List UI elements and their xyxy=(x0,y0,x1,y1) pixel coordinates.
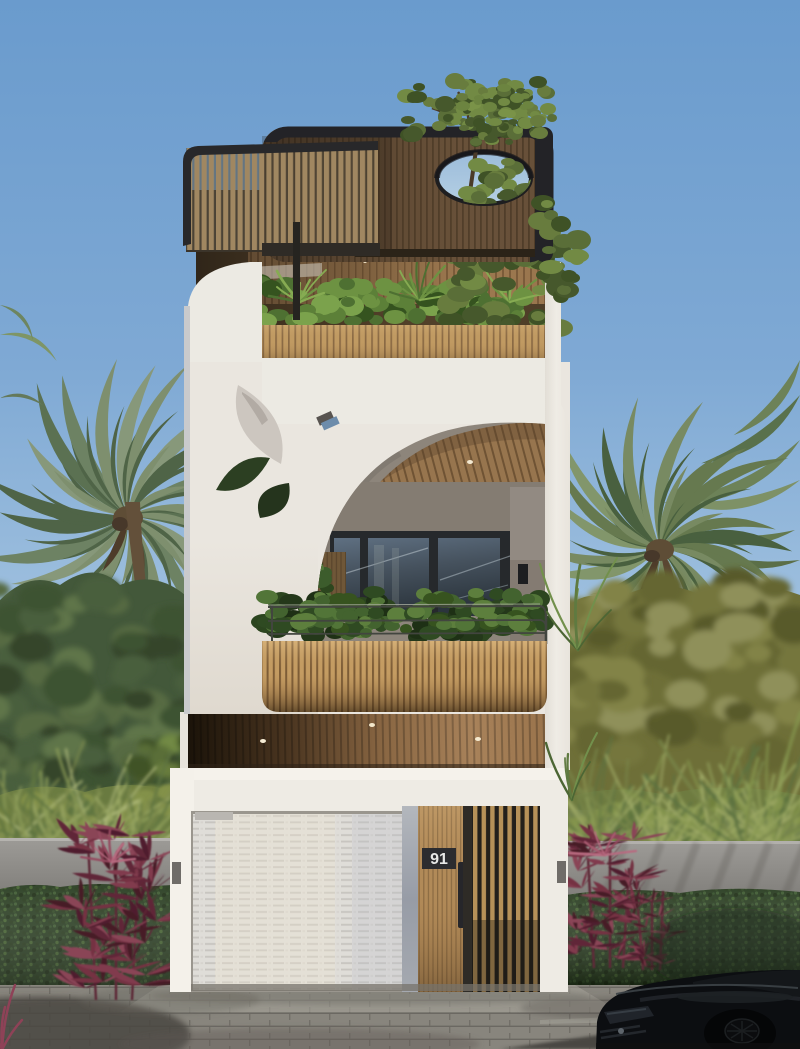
svg-text:91: 91 xyxy=(430,851,448,868)
